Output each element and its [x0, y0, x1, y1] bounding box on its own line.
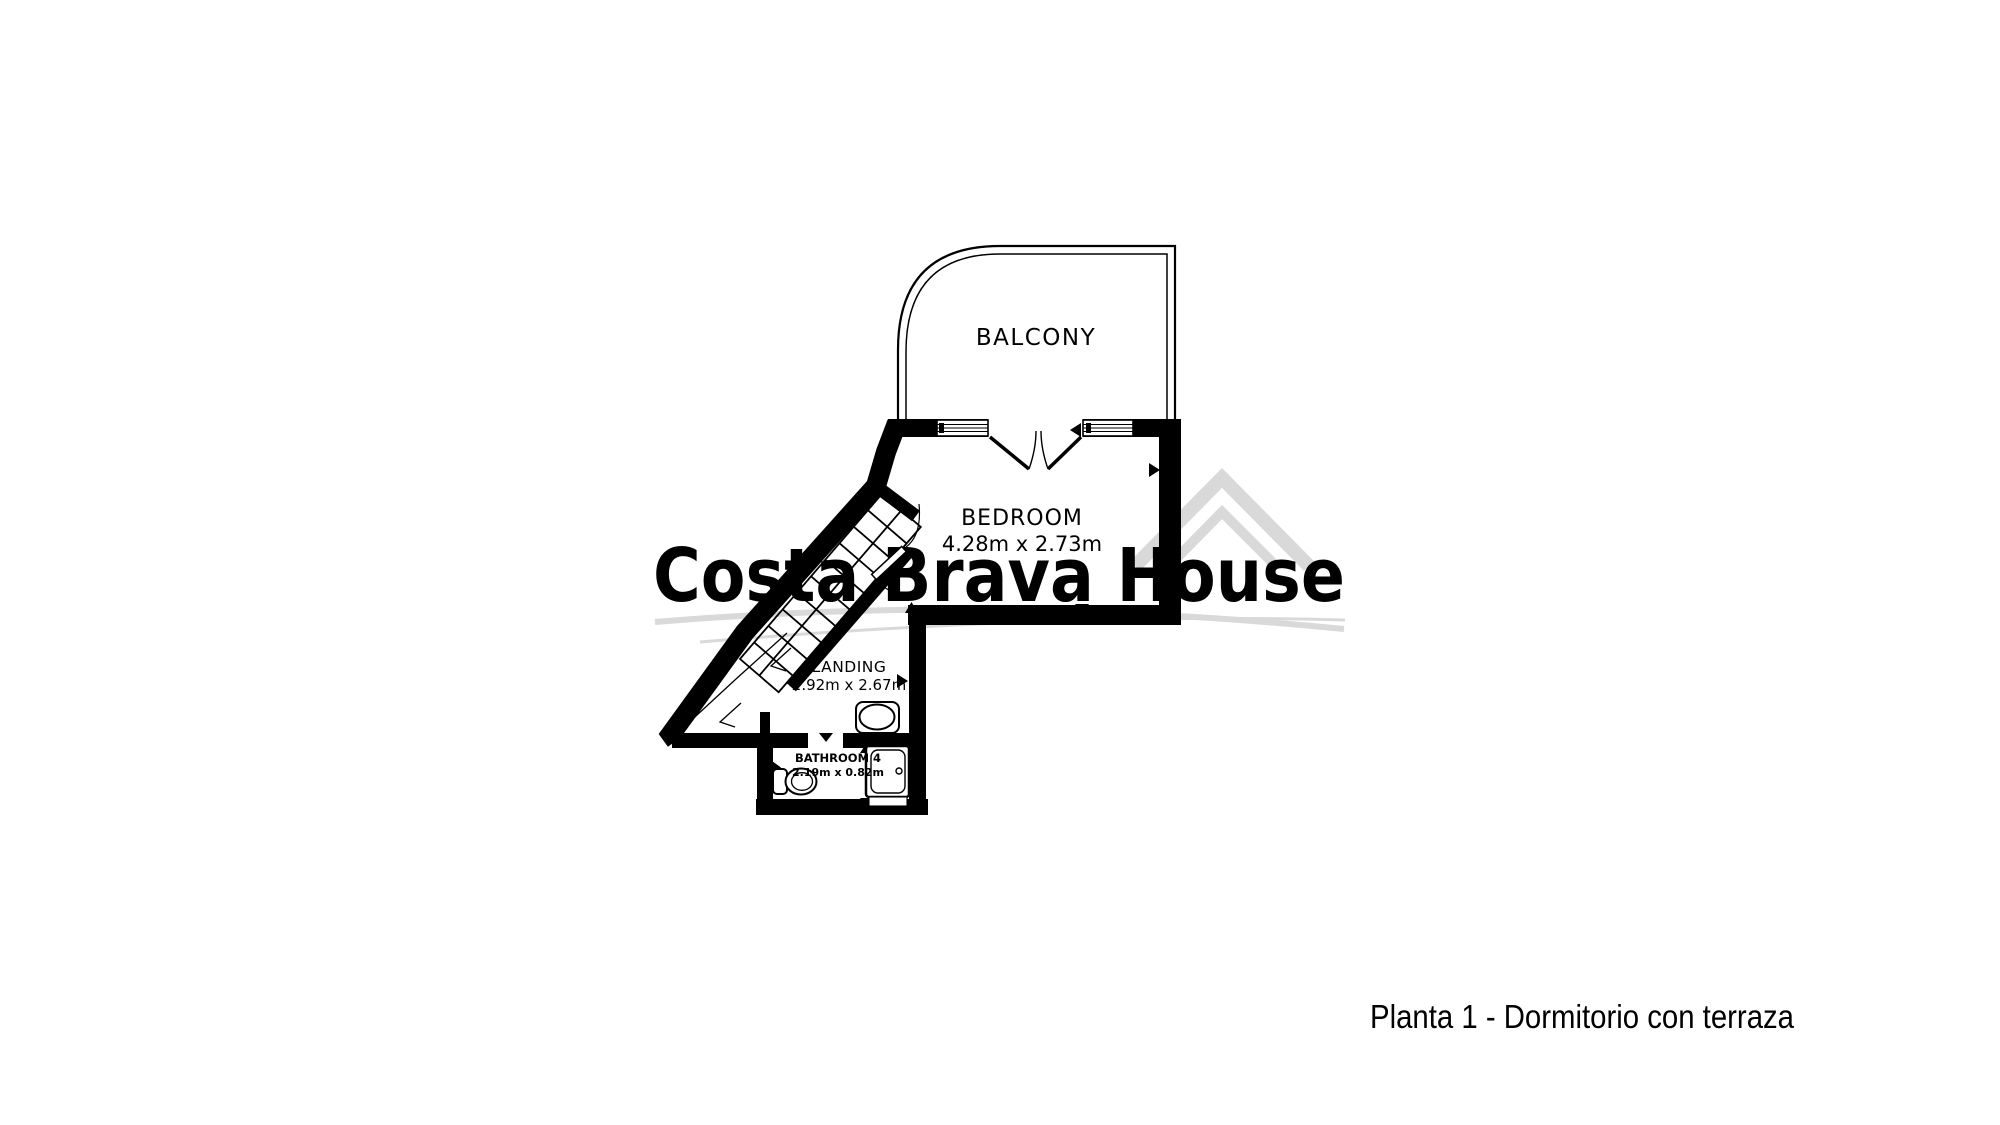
bedroom-bottom-wall	[908, 605, 1181, 625]
landing-bottom-wall	[672, 733, 808, 748]
bathroom-door-arrow	[819, 733, 833, 742]
bathroom-label: BATHROOM 4	[795, 751, 881, 765]
bedroom-right-wall	[1159, 419, 1181, 625]
washbasin-icon	[856, 702, 899, 733]
stair-top-cap-wall	[876, 486, 916, 516]
landing-right-wall	[909, 605, 926, 810]
under-stairs-mark	[720, 703, 741, 727]
plan-caption: Planta 1 - Dormitorio con terraza	[1370, 998, 1795, 1035]
landing-label: LANDING	[812, 658, 887, 676]
landing-dimensions: 2.92m x 2.67m	[792, 676, 906, 694]
floor-plan-page: Costa Brava House BALCONY	[0, 0, 2000, 1125]
bedroom-dimensions: 4.28m x 2.73m	[942, 532, 1102, 556]
balcony-window-right	[1083, 420, 1133, 436]
bedroom-label: BEDROOM	[961, 506, 1083, 531]
floor-plan: Costa Brava House BALCONY	[0, 0, 2000, 1125]
bathroom-dimensions: 2.19m x 0.82m	[792, 766, 884, 779]
bedroom-walls	[888, 416, 1181, 810]
balcony-label: BALCONY	[976, 325, 1096, 351]
bathroom-left-wall	[757, 734, 773, 804]
bedroom-wall-arrow	[1149, 463, 1160, 477]
balcony: BALCONY	[898, 246, 1175, 419]
balcony-window-left	[937, 420, 988, 436]
